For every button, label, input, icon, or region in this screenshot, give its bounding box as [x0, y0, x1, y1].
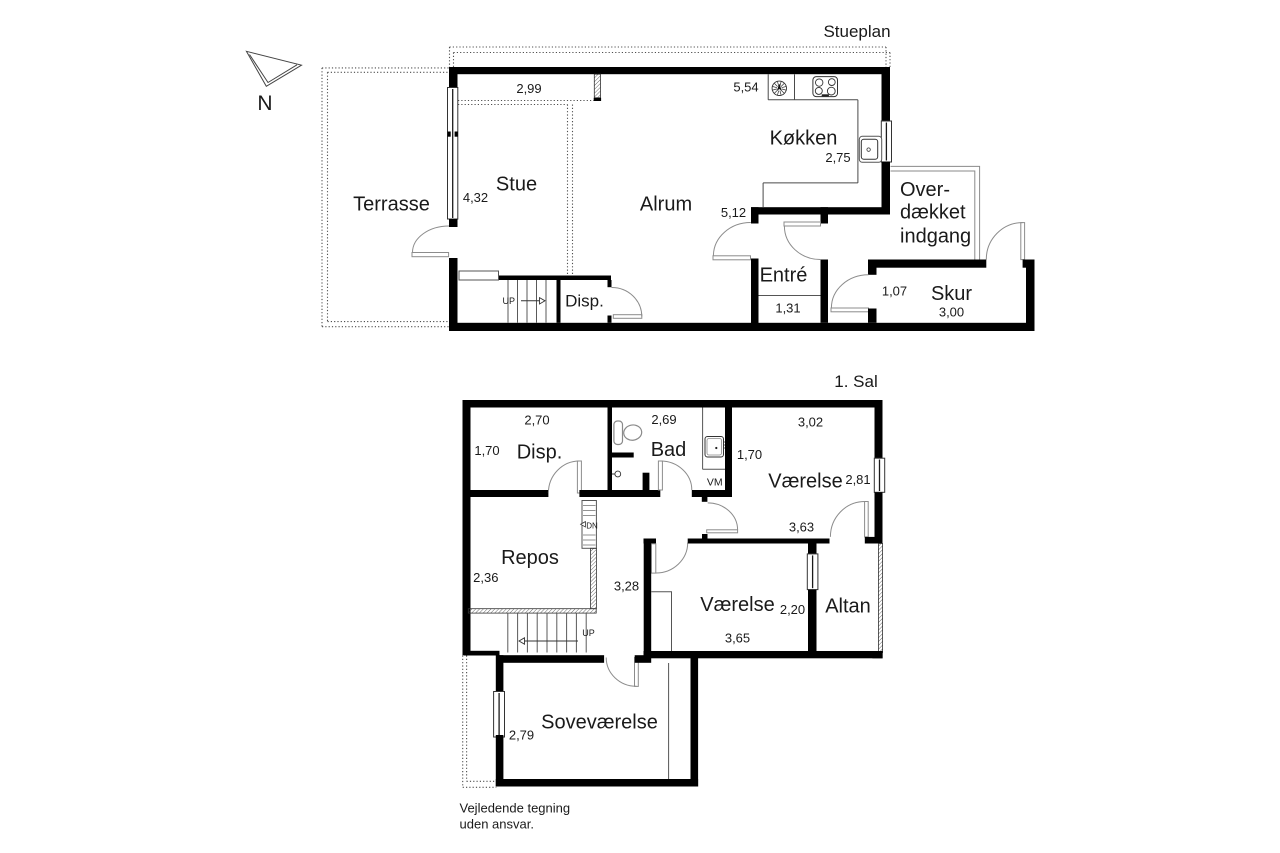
svg-text:Soveværelse: Soveværelse: [541, 712, 658, 734]
svg-text:Altan: Altan: [825, 595, 871, 617]
svg-text:Alrum: Alrum: [640, 193, 692, 215]
svg-text:5,12: 5,12: [721, 205, 746, 220]
svg-text:1,07: 1,07: [882, 284, 907, 299]
svg-text:uden ansvar.: uden ansvar.: [460, 817, 534, 832]
svg-text:Stueplan: Stueplan: [823, 22, 890, 41]
svg-text:Terrasse: Terrasse: [353, 194, 430, 216]
svg-text:1. Sal: 1. Sal: [834, 372, 877, 391]
svg-text:2,75: 2,75: [825, 150, 850, 165]
svg-text:2,20: 2,20: [780, 602, 805, 617]
svg-text:Stue: Stue: [496, 174, 537, 196]
svg-text:2,70: 2,70: [524, 413, 549, 428]
svg-text:UP: UP: [582, 628, 595, 638]
svg-text:5,54: 5,54: [733, 80, 758, 95]
svg-text:Repos: Repos: [501, 547, 559, 569]
svg-text:2,79: 2,79: [509, 727, 534, 742]
svg-text:3,00: 3,00: [939, 305, 964, 320]
svg-text:3,02: 3,02: [798, 415, 823, 430]
svg-text:1,70: 1,70: [737, 447, 762, 462]
svg-text:Disp.: Disp.: [565, 292, 604, 311]
svg-text:2,36: 2,36: [473, 570, 498, 585]
svg-text:N: N: [257, 92, 272, 115]
svg-text:VM: VM: [707, 476, 723, 488]
svg-text:2,99: 2,99: [516, 81, 541, 96]
svg-text:Skur: Skur: [931, 283, 972, 305]
svg-text:Over-: Over-: [900, 179, 950, 201]
svg-text:Køkken: Køkken: [770, 127, 838, 149]
svg-text:2,81: 2,81: [845, 472, 870, 487]
svg-text:DN: DN: [586, 521, 598, 530]
svg-text:2,69: 2,69: [651, 412, 676, 427]
svg-text:dækket: dækket: [900, 201, 966, 223]
svg-text:Værelse: Værelse: [700, 594, 774, 616]
svg-text:Vejledende tegning: Vejledende tegning: [460, 801, 571, 816]
svg-text:3,63: 3,63: [789, 519, 814, 534]
svg-text:1,70: 1,70: [474, 443, 499, 458]
svg-text:Værelse: Værelse: [768, 470, 842, 492]
svg-text:4,32: 4,32: [463, 190, 488, 205]
svg-text:Entré: Entré: [760, 265, 808, 287]
svg-text:3,28: 3,28: [614, 578, 639, 593]
svg-text:Bad: Bad: [651, 439, 687, 461]
svg-text:3,65: 3,65: [725, 630, 750, 645]
svg-text:1,31: 1,31: [775, 301, 800, 316]
svg-text:Disp.: Disp.: [517, 442, 563, 464]
svg-text:UP: UP: [503, 296, 516, 306]
svg-text:indgang: indgang: [900, 226, 971, 248]
